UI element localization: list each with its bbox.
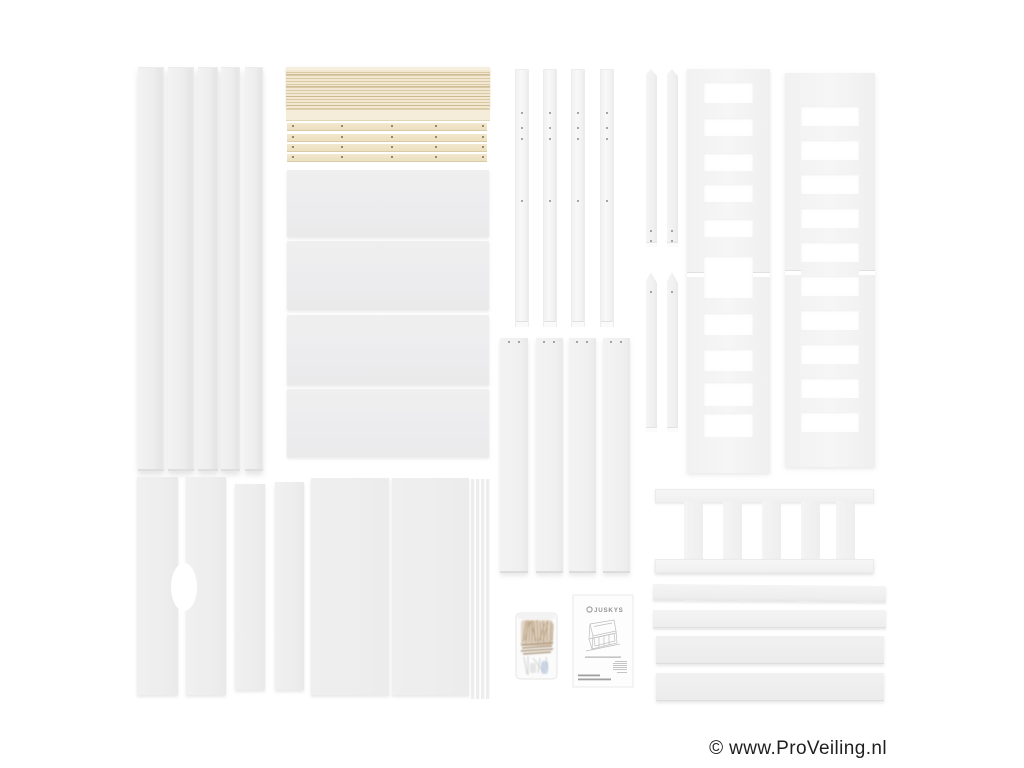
svg-text:JUSKYS: JUSKYS — [594, 607, 624, 614]
